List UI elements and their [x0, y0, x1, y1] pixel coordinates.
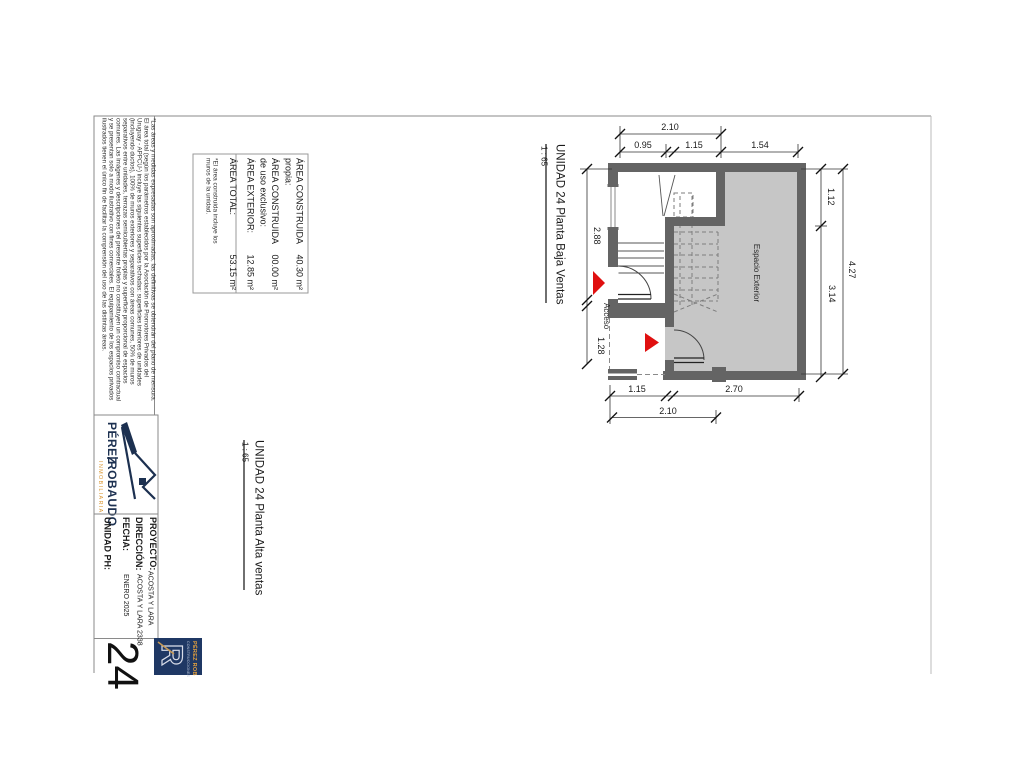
- svg-text:2.10: 2.10: [661, 122, 679, 132]
- svg-text:UNIDAD PH:: UNIDAD PH:: [103, 517, 113, 570]
- svg-text:PÉREZ ROB: PÉREZ ROB: [191, 641, 199, 676]
- svg-text:UNIDAD 24 Planta Alta ventas: UNIDAD 24 Planta Alta ventas: [253, 440, 265, 596]
- svg-text:PROYECTO:: PROYECTO:: [148, 517, 158, 570]
- svg-text:4.27: 4.27: [847, 261, 857, 279]
- svg-text:00.00 m²: 00.00 m²: [270, 254, 280, 290]
- svg-text:ÁREA CONSTRUIDA: ÁREA CONSTRUIDA: [295, 158, 305, 244]
- svg-text:ACOSTA Y LARA: ACOSTA Y LARA: [147, 571, 154, 626]
- svg-text:1.15: 1.15: [685, 140, 703, 150]
- svg-text:12.85 m²: 12.85 m²: [246, 254, 256, 290]
- svg-text:ilustrados tienen el único fin: ilustrados tienen el único fin de facili…: [101, 118, 108, 351]
- svg-text:ÁREA TOTAL:: ÁREA TOTAL:: [228, 158, 238, 215]
- svg-text:propia:: propia:: [284, 158, 294, 186]
- svg-text:y se presentan solo a modo ilu: y se presentan solo a modo ilustrativo c…: [108, 118, 115, 400]
- svg-text:de uso exclusivo:: de uso exclusivo:: [259, 158, 269, 227]
- svg-text:24: 24: [98, 641, 147, 690]
- svg-text:R: R: [155, 644, 188, 666]
- svg-text:INMOBILIARIA: INMOBILIARIA: [97, 461, 103, 514]
- svg-text:Acceso: Acceso: [602, 303, 611, 330]
- svg-text:0.95: 0.95: [634, 140, 652, 150]
- svg-text:Uruguay - APPCU-) incluye las: Uruguay - APPCU-) incluye las siguientes…: [136, 118, 143, 386]
- svg-text:FECHA:: FECHA:: [121, 517, 131, 551]
- svg-text:*Las áreas y medidas expresada: *Las áreas y medidas expresadas son apro…: [150, 118, 157, 402]
- svg-text:El área total (según los parám: El área total (según los parámetros esta…: [143, 118, 150, 377]
- svg-text:1 : 65: 1 : 65: [540, 146, 549, 167]
- svg-text:DIRECCIÓN:: DIRECCIÓN:: [134, 517, 145, 571]
- svg-text:1 : 65: 1 : 65: [241, 442, 250, 463]
- svg-text:ÁREA EXTERIOR:: ÁREA EXTERIOR:: [246, 158, 256, 233]
- svg-text:ENERO 2025: ENERO 2025: [122, 574, 129, 617]
- svg-text:ÁREA CONSTRUIDA: ÁREA CONSTRUIDA: [270, 158, 280, 244]
- svg-text:ACOSTA Y LARA 2338: ACOSTA Y LARA 2338: [136, 574, 143, 646]
- svg-text:2.70: 2.70: [725, 384, 743, 394]
- svg-text:53.15 m²: 53.15 m²: [228, 254, 238, 290]
- svg-text:1.15: 1.15: [628, 384, 646, 394]
- svg-text:3.14: 3.14: [827, 285, 837, 303]
- svg-text:comunes. Las imágenes y descri: comunes. Las imágenes y descripciones de…: [115, 118, 122, 401]
- svg-text:Espacio Exterior: Espacio Exterior: [752, 244, 761, 303]
- svg-text:1.54: 1.54: [751, 140, 769, 150]
- svg-text:muros de la unidad.: muros de la unidad.: [205, 158, 212, 214]
- svg-text:UNIDAD 24 Planta Baja Ventas: UNIDAD 24 Planta Baja Ventas: [554, 144, 566, 305]
- svg-text:1.28: 1.28: [596, 337, 606, 355]
- svg-text:2.88: 2.88: [592, 227, 602, 245]
- svg-text:1.12: 1.12: [826, 188, 836, 206]
- svg-text:40.30 m²: 40.30 m²: [295, 254, 305, 290]
- svg-text:2.10: 2.10: [659, 406, 677, 416]
- svg-text:*El área construida incluye lo: *El área construida incluye los: [212, 158, 219, 244]
- svg-text:(incluyendo ductos), 100% de m: (incluyendo ductos), 100% de muros exter…: [129, 118, 136, 385]
- svg-text:separativos entre unidades, te: separativos entre unidades, terrazas sem…: [122, 118, 129, 384]
